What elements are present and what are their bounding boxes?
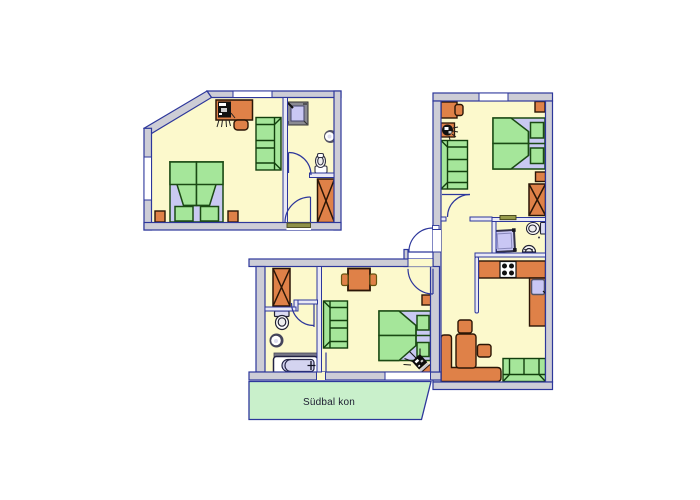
svg-text:Südbal kon: Südbal kon [303,397,355,408]
